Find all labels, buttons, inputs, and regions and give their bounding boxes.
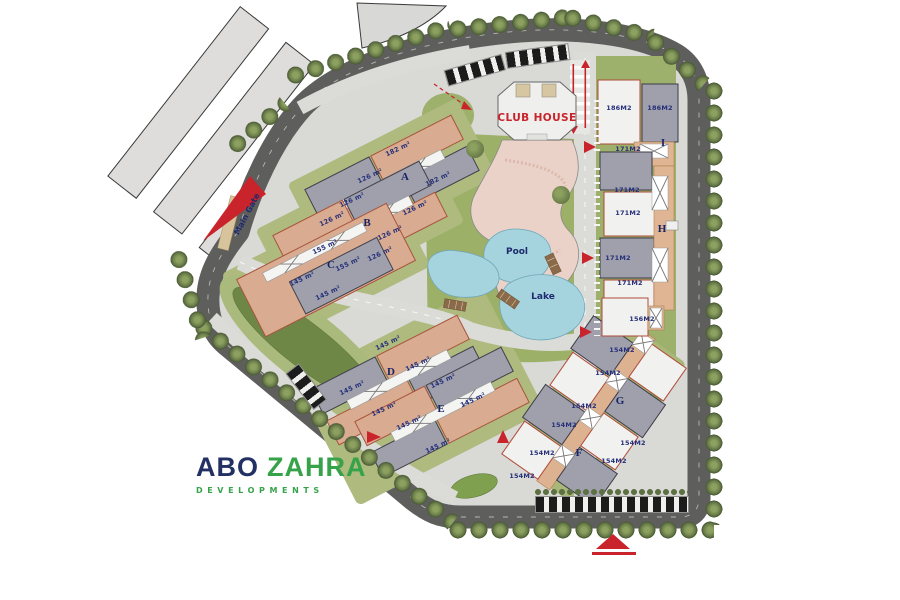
unit-area-label: 154M2 (551, 421, 577, 429)
developer-logo: ABO ZAHRA DEVELOPMENTS (196, 452, 381, 495)
building-letter-h: H (658, 223, 667, 235)
unit-area-label: 171M2 (615, 209, 641, 217)
club-house-label: CLUB HOUSE (497, 112, 576, 124)
unit-area-label: 154M2 (509, 472, 535, 480)
building-letter-d: D (387, 366, 395, 378)
logo-word-zahra: ZAHRA (267, 452, 367, 483)
building-letter-i: I (661, 137, 665, 149)
building-cluster-i-h (598, 80, 678, 336)
parking-ticks (594, 168, 600, 226)
building-letter-f: F (576, 447, 583, 459)
tree (466, 140, 484, 158)
unit-area-label: 156M2 (629, 315, 655, 323)
building-letter-b: B (363, 217, 370, 229)
unit-area-label: 171M2 (614, 186, 640, 194)
unit-area-label: 154M2 (620, 439, 646, 447)
tree (552, 186, 570, 204)
unit-area-label: 186M2 (606, 104, 632, 112)
tree-row (448, 520, 714, 540)
unit-area-label: 171M2 (617, 279, 643, 287)
unit-area-label: 154M2 (595, 369, 621, 377)
logo-word-abo: ABO (196, 452, 259, 483)
pool-label: Pool (506, 247, 528, 257)
tree-row (704, 80, 724, 525)
logo-tagline: DEVELOPMENTS (196, 486, 381, 495)
unit-area-label: 171M2 (605, 254, 631, 262)
building-letter-e: E (437, 403, 444, 415)
parking-cars (535, 496, 689, 513)
unit-area-label: 186M2 (647, 104, 673, 112)
unit-area-label: 154M2 (529, 449, 555, 457)
parking-ticks (594, 300, 600, 336)
unit-area-label: 154M2 (609, 346, 635, 354)
parking-ticks (594, 240, 600, 296)
parking-ticks (594, 100, 600, 152)
unit-area-label: 154M2 (601, 457, 627, 465)
unit-area-label: 154M2 (571, 402, 597, 410)
building-letter-g: G (616, 395, 625, 407)
building-letter-a: A (401, 171, 409, 183)
lake-label: Lake (531, 292, 555, 302)
hedge-row (534, 488, 688, 496)
logo-wordmark: ABO ZAHRA (196, 452, 381, 483)
master-plan: CLUB HOUSE Pool Lake Main Gate A B C D E… (0, 0, 900, 600)
club-house-building (498, 82, 576, 140)
unit-area-label: 171M2 (615, 145, 641, 153)
